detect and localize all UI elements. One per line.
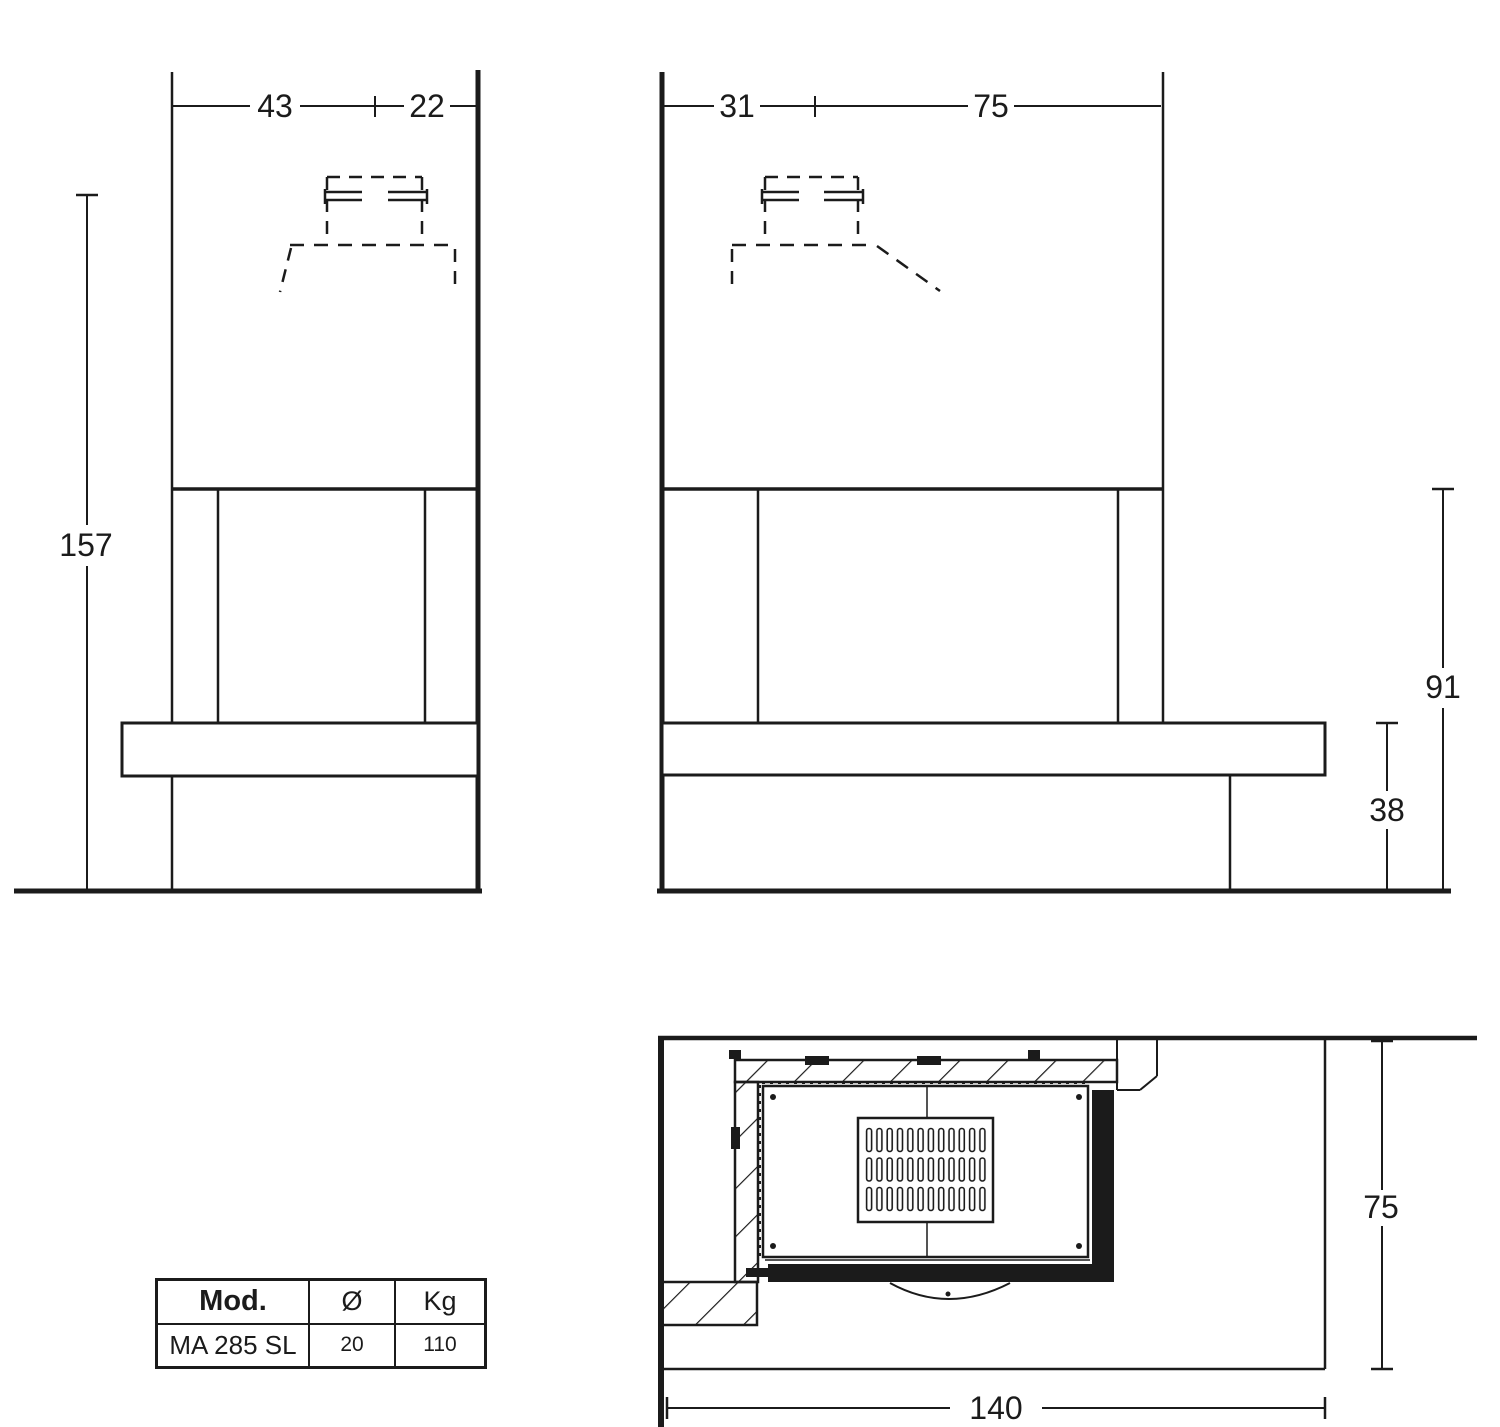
screw-dot [770, 1094, 776, 1100]
spec-header-weight: Kg [395, 1280, 486, 1324]
spec-value-weight: 110 [395, 1324, 486, 1368]
fireplace-technical-drawing: 43 22 157 31 75 9 [0, 0, 1500, 1427]
spec-value-model: MA 285 SL [157, 1324, 310, 1368]
plan-insert-left-band [735, 1082, 758, 1282]
front-mantel-shelf [122, 723, 478, 776]
plan-door-arc [890, 1283, 1010, 1299]
front-dim-height-label: 157 [59, 527, 112, 563]
side-flue-dashed [732, 177, 940, 292]
side-view-structure [657, 72, 1451, 892]
plan-insert [661, 1050, 1117, 1325]
plan-door-pivot [946, 1292, 951, 1297]
front-dim-width-left-label: 43 [257, 88, 293, 124]
plan-side-wall-step [661, 1282, 757, 1325]
spec-value-diameter: 20 [309, 1324, 395, 1368]
plan-wall-return [1117, 1038, 1157, 1090]
spec-table: Mod. Ø Kg MA 285 SL 20 110 [155, 1278, 487, 1369]
side-view [657, 72, 1454, 892]
plan-dim-depth-label: 75 [1363, 1189, 1399, 1225]
plan-view [658, 1037, 1477, 1427]
front-flue-dashed [280, 177, 455, 292]
screw-dot [770, 1243, 776, 1249]
plan-door-hinge [746, 1268, 768, 1277]
plan-dim-width-label: 140 [969, 1390, 1022, 1426]
front-dim-width-right-label: 22 [409, 88, 445, 124]
plan-clip [917, 1056, 941, 1065]
plan-grille-slots [864, 1126, 987, 1215]
front-view-structure [14, 70, 482, 892]
side-dim-depth-right-label: 75 [973, 88, 1009, 124]
screw-dot [1076, 1094, 1082, 1100]
spec-table-data-row: MA 285 SL 20 110 [157, 1324, 486, 1368]
side-dim-depth-left-label: 31 [719, 88, 755, 124]
plan-clip [729, 1050, 741, 1059]
side-mantel-shelf [662, 723, 1325, 775]
technical-drawing-svg: 43 22 157 31 75 9 [0, 0, 1500, 1427]
front-view [14, 70, 482, 892]
plan-clip [731, 1127, 740, 1149]
screw-dot [1076, 1243, 1082, 1249]
plan-clip [1028, 1050, 1040, 1059]
spec-header-model: Mod. [157, 1280, 310, 1324]
plan-clip [805, 1056, 829, 1065]
side-dim-hearth-height-label: 91 [1425, 669, 1461, 705]
spec-table-header-row: Mod. Ø Kg [157, 1280, 486, 1324]
side-dim-base-height-label: 38 [1369, 792, 1405, 828]
spec-header-diameter: Ø [309, 1280, 395, 1324]
